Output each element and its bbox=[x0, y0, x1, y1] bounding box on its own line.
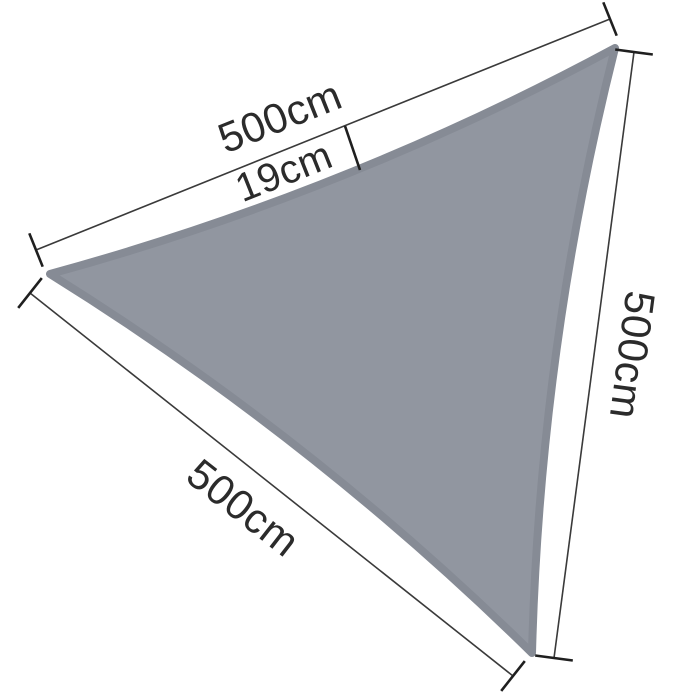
dimension-sag bbox=[345, 126, 360, 170]
diagram-canvas bbox=[0, 0, 700, 700]
dimension-top-end-tick bbox=[603, 2, 616, 35]
dimension-bottom-left-start-tick bbox=[18, 278, 42, 308]
shade-sail-dimension-diagram: 500cm 19cm 500cm 500cm bbox=[0, 0, 700, 700]
dimension-top-start-tick bbox=[29, 233, 42, 266]
dimension-bottom-left-end-tick bbox=[501, 661, 525, 691]
shade-sail-shape bbox=[50, 48, 615, 653]
dimension-sag-tick bbox=[345, 126, 360, 170]
